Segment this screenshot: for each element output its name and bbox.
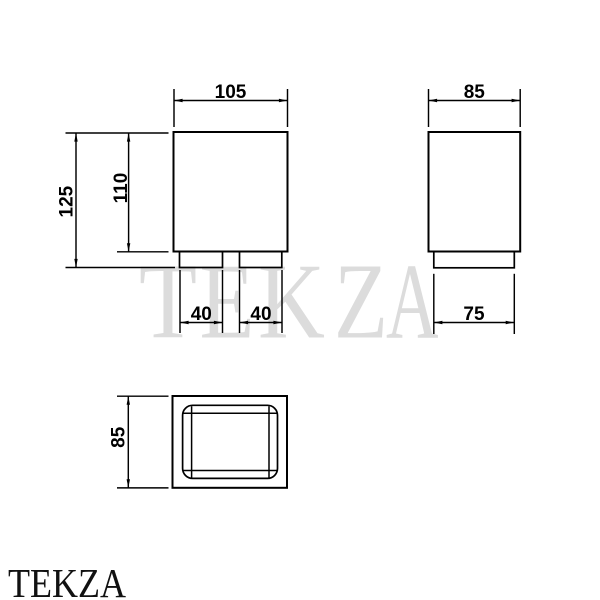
svg-text:75: 75 (463, 304, 485, 325)
svg-text:E: E (200, 243, 255, 362)
svg-text:A: A (386, 243, 439, 362)
svg-text:105: 105 (215, 82, 247, 103)
svg-text:40: 40 (191, 304, 212, 325)
svg-text:110: 110 (111, 173, 132, 204)
svg-text:K: K (258, 243, 325, 362)
svg-text:T: T (139, 243, 197, 362)
svg-text:40: 40 (250, 304, 271, 325)
svg-text:125: 125 (57, 185, 78, 217)
svg-text:Z: Z (334, 243, 388, 362)
svg-text:85: 85 (109, 426, 130, 448)
svg-text:TEKZA: TEKZA (8, 560, 126, 600)
svg-text:85: 85 (464, 82, 486, 103)
